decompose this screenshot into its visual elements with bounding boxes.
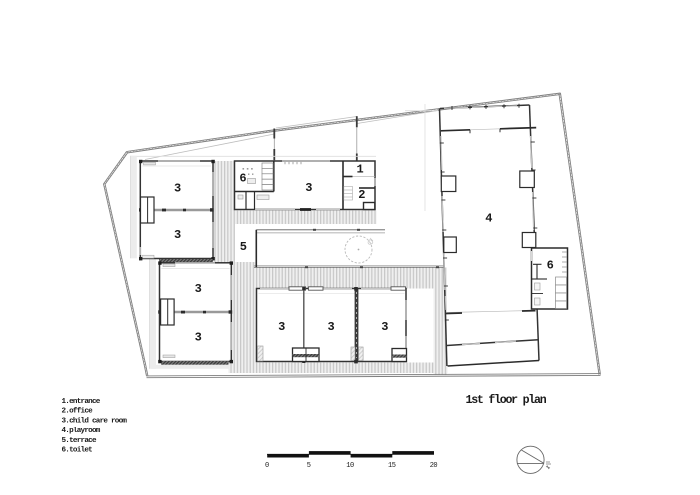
svg-text:2.office: 2.office	[62, 408, 94, 416]
svg-text:3: 3	[195, 282, 202, 296]
svg-text:6: 6	[239, 171, 246, 185]
svg-text:1st floor plan: 1st floor plan	[466, 394, 547, 407]
svg-text:15: 15	[388, 462, 396, 470]
svg-text:1: 1	[357, 162, 364, 176]
svg-text:3: 3	[278, 320, 285, 334]
svg-text:1.entrance: 1.entrance	[62, 398, 101, 406]
svg-text:5.terrace: 5.terrace	[62, 437, 97, 445]
svg-text:5: 5	[307, 462, 311, 470]
svg-text:2: 2	[358, 188, 365, 202]
svg-text:3.child care room: 3.child care room	[62, 417, 128, 425]
svg-text:3: 3	[174, 228, 181, 242]
svg-text:5: 5	[240, 240, 247, 254]
svg-text:3: 3	[381, 320, 388, 334]
svg-text:4: 4	[485, 212, 492, 226]
svg-text:10: 10	[346, 462, 354, 470]
svg-text:20: 20	[430, 462, 438, 470]
svg-text:3: 3	[174, 181, 181, 195]
svg-text:6.toilet: 6.toilet	[62, 447, 93, 455]
svg-text:3: 3	[305, 181, 312, 195]
svg-text:4.playroom: 4.playroom	[62, 427, 101, 435]
svg-text:0: 0	[265, 462, 269, 470]
svg-text:6: 6	[547, 258, 554, 272]
svg-text:3: 3	[195, 330, 202, 344]
svg-text:3: 3	[328, 320, 335, 334]
